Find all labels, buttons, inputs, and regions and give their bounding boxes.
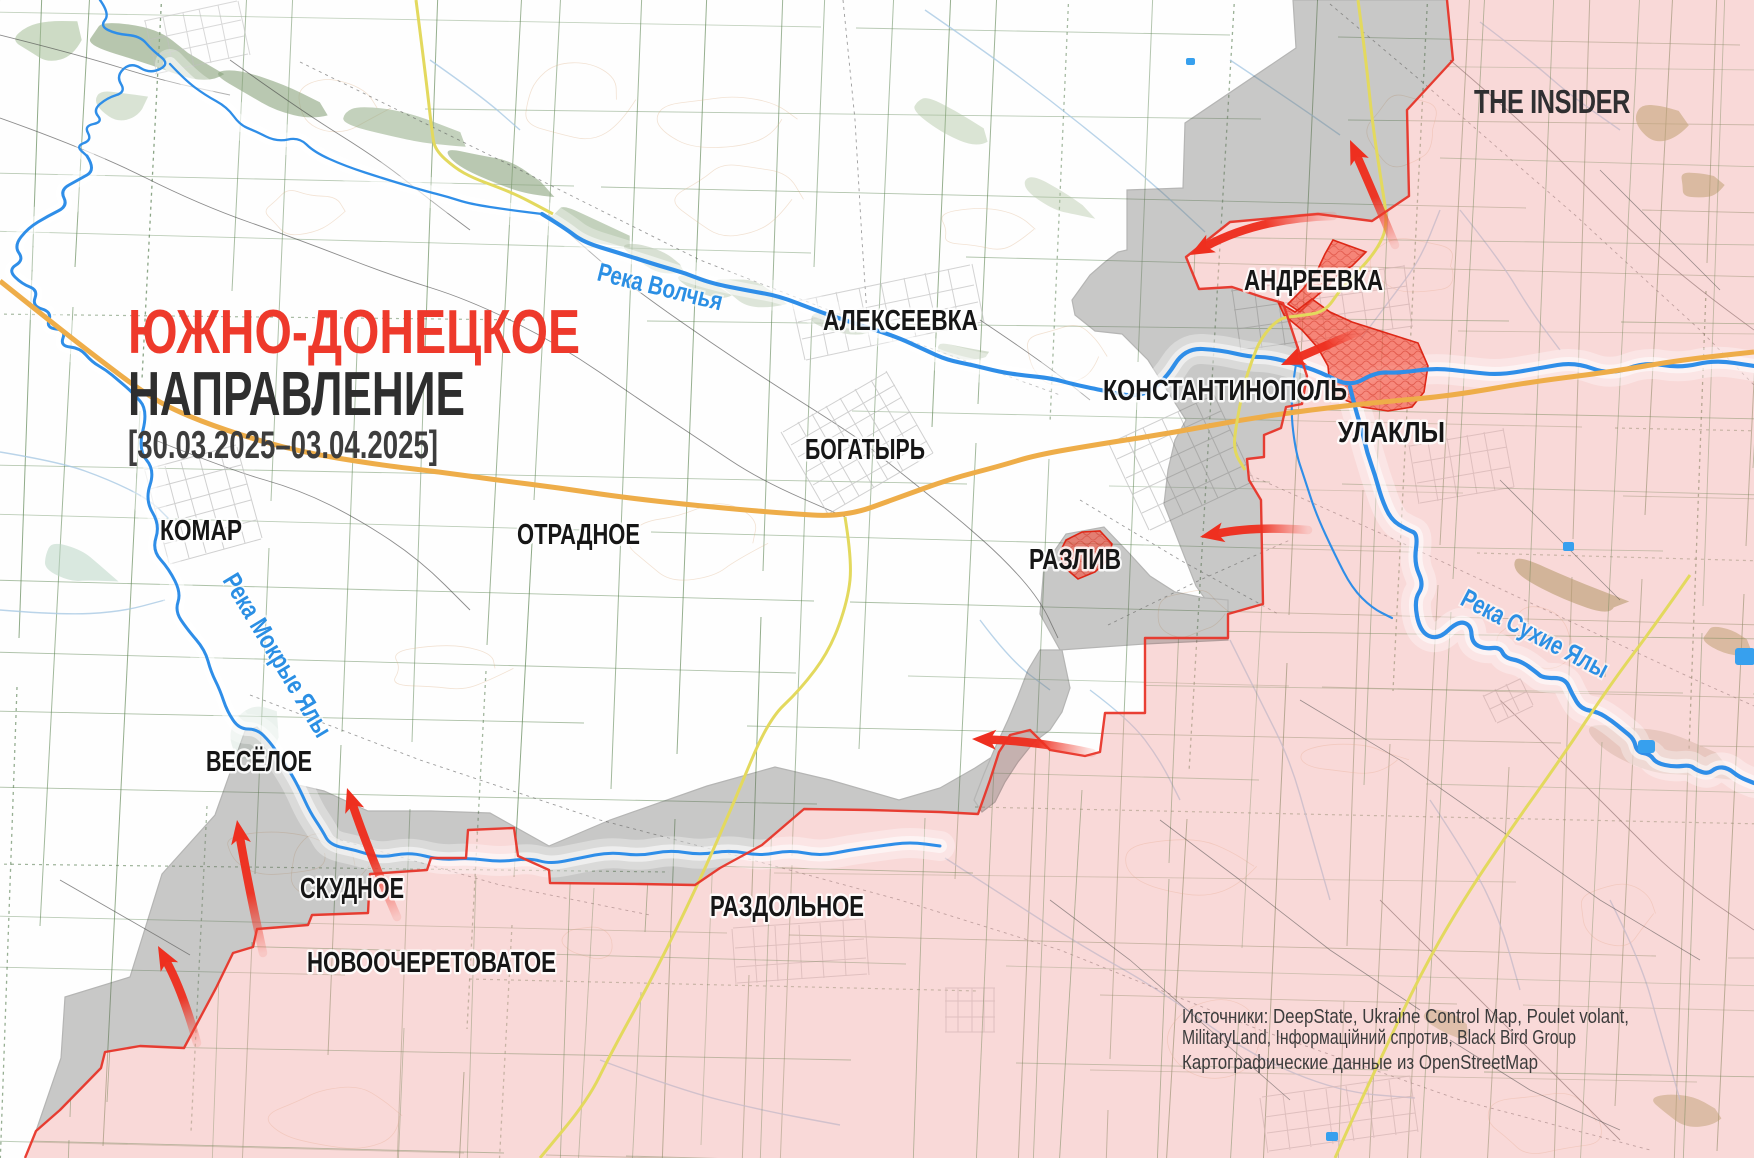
svg-text:НОВООЧЕРЕТОВАТОЕ: НОВООЧЕРЕТОВАТОЕ (307, 947, 556, 979)
svg-text:УЛАКЛЫ: УЛАКЛЫ (1338, 417, 1445, 449)
svg-text:РАЗЛИВ: РАЗЛИВ (1029, 544, 1121, 576)
svg-text:ОТРАДНОЕ: ОТРАДНОЕ (517, 519, 640, 551)
svg-text:Источники: DeepState, Ukraine: Источники: DeepState, Ukraine Control Ma… (1182, 1005, 1629, 1028)
svg-text:НАПРАВЛЕНИЕ: НАПРАВЛЕНИЕ (128, 360, 465, 429)
svg-text:MilitaryLand, Інформаційний сп: MilitaryLand, Інформаційний спротив, Bla… (1182, 1026, 1576, 1049)
svg-text:СКУДНОЕ: СКУДНОЕ (300, 873, 404, 905)
svg-text:THE INSIDER: THE INSIDER (1474, 83, 1631, 120)
svg-text:БОГАТЫРЬ: БОГАТЫРЬ (805, 434, 925, 466)
svg-text:АЛЕКСЕЕВКА: АЛЕКСЕЕВКА (823, 305, 978, 337)
svg-text:ЮЖНО-ДОНЕЦКОЕ: ЮЖНО-ДОНЕЦКОЕ (128, 298, 580, 367)
svg-text:ВЕСЁЛОЕ: ВЕСЁЛОЕ (206, 745, 312, 778)
svg-text:Картографические данные из Ope: Картографические данные из OpenStreetMap (1182, 1051, 1538, 1074)
svg-text:КОМАР: КОМАР (160, 515, 242, 547)
svg-text:РАЗДОЛЬНОЕ: РАЗДОЛЬНОЕ (710, 891, 864, 923)
svg-text:АНДРЕЕВКА: АНДРЕЕВКА (1244, 265, 1383, 297)
svg-text:КОНСТАНТИНОПОЛЬ: КОНСТАНТИНОПОЛЬ (1103, 375, 1347, 407)
svg-text:[30.03.2025–03.04.2025]: [30.03.2025–03.04.2025] (128, 424, 438, 467)
